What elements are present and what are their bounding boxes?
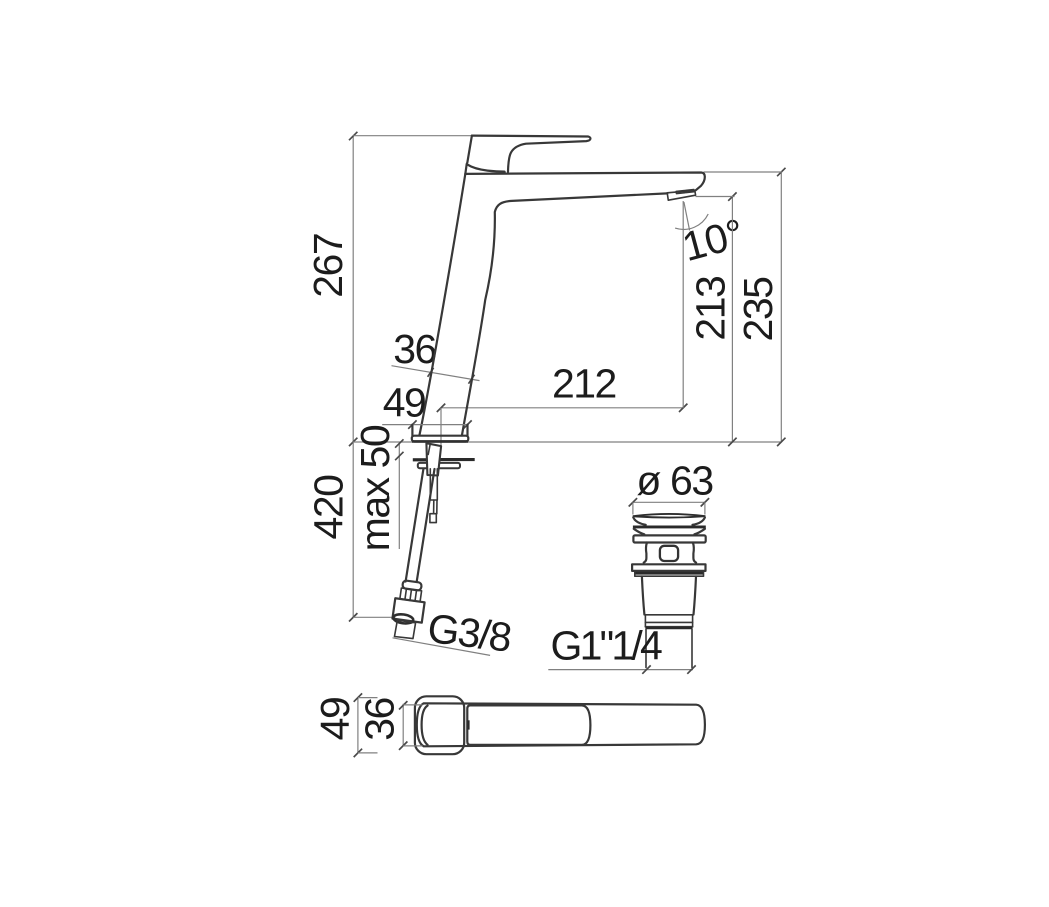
svg-text:267: 267	[305, 234, 351, 298]
svg-text:49: 49	[383, 380, 426, 426]
svg-text:G1"1/4: G1"1/4	[551, 623, 662, 669]
svg-text:ø 63: ø 63	[636, 457, 712, 503]
svg-text:420: 420	[305, 475, 351, 540]
svg-text:36: 36	[393, 326, 436, 372]
svg-text:36: 36	[357, 698, 403, 741]
svg-text:49: 49	[312, 698, 358, 741]
svg-text:235: 235	[735, 277, 781, 342]
svg-text:212: 212	[552, 360, 616, 406]
svg-text:max 50: max 50	[352, 425, 398, 551]
svg-text:213: 213	[687, 277, 733, 341]
